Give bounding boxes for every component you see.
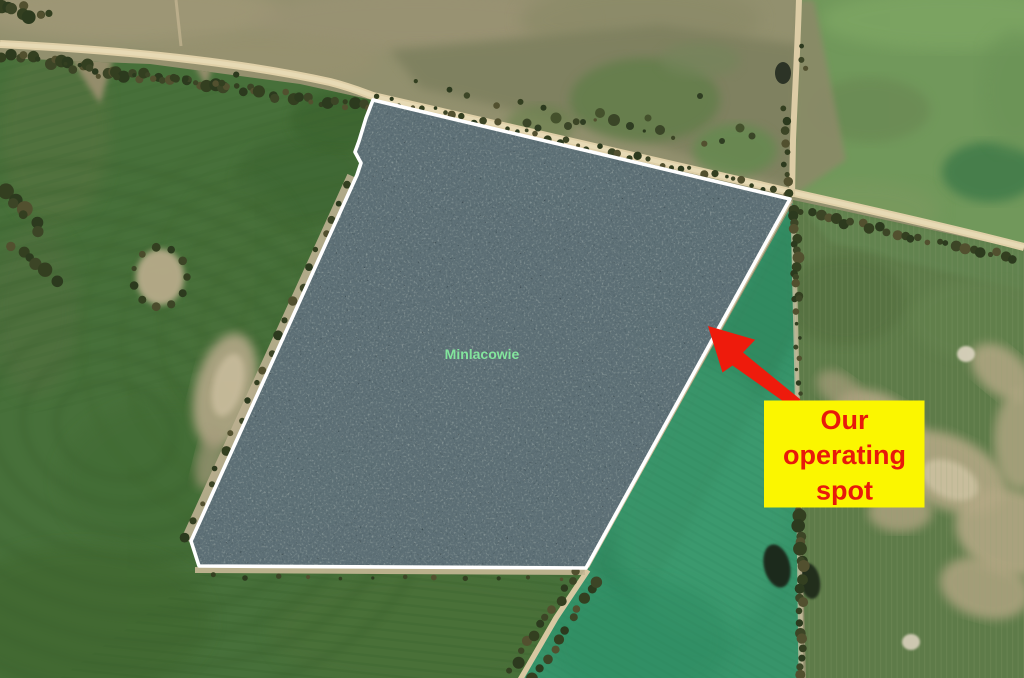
- svg-text:Minlacowie: Minlacowie: [445, 346, 520, 362]
- svg-text:operating: operating: [783, 440, 906, 470]
- svg-text:spot: spot: [816, 476, 873, 506]
- svg-text:Our: Our: [820, 405, 868, 435]
